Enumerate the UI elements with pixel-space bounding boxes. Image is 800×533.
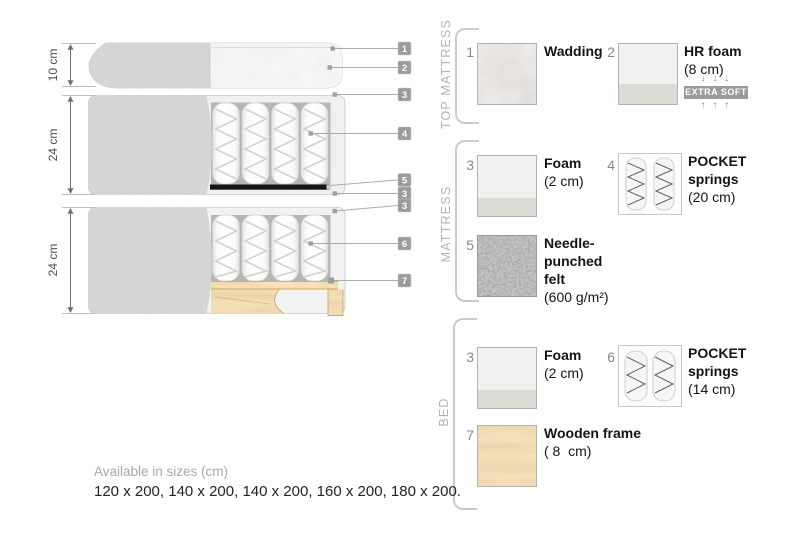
- legend-num-7: 7: [460, 427, 474, 443]
- callout-tag-2: 2: [398, 61, 411, 74]
- fabric-cover-bed: [84, 204, 218, 318]
- wadding-swatch: [477, 43, 537, 105]
- legend-label-pocket-springs-20: POCKET springs (20 cm): [688, 152, 746, 206]
- callout-tag-6: 6: [398, 237, 411, 250]
- section-title-bed: BED: [437, 397, 451, 426]
- callout-tags: 1 2 3 4 5 3 3 6 7: [398, 42, 411, 287]
- callout-tag-7: 7: [398, 274, 411, 287]
- fabric-cover-top: [84, 40, 215, 92]
- felt-strip: [210, 185, 329, 190]
- dimension-top-mattress: 10 cm: [46, 44, 96, 87]
- foam-swatch: [477, 155, 537, 217]
- legend-num-2: 2: [601, 44, 615, 60]
- legend-num-4: 4: [601, 157, 615, 173]
- callout-tag-5: 5: [398, 174, 411, 187]
- wooden-frame-swatch: [477, 425, 537, 487]
- wadding-fill: [200, 41, 346, 91]
- available-sizes-values: 120 x 200, 140 x 200, 140 x 200, 160 x 2…: [94, 483, 461, 500]
- callout-tag-3: 3: [398, 88, 411, 101]
- svg-text:5: 5: [402, 175, 408, 186]
- arrows-down-icon: ↓ ↓ ↓: [684, 74, 748, 84]
- foam-swatch-bed: [477, 347, 537, 409]
- arrows-up-icon: ↑ ↑ ↑: [684, 101, 748, 111]
- callout-tag-3c: 3: [398, 199, 411, 212]
- bed-cross-section: [84, 204, 350, 319]
- legend-num-6: 6: [601, 349, 615, 365]
- callout-tag-1: 1: [398, 42, 411, 55]
- section-title-top-mattress: TOP MATTRESS: [439, 19, 453, 129]
- pocket-springs-14-swatch: [618, 345, 682, 407]
- legend-label-felt: Needle- punched felt (600 g/m²): [544, 234, 609, 306]
- svg-text:1: 1: [402, 44, 408, 55]
- section-title-mattress: MATTRESS: [439, 186, 453, 263]
- legend-label-pocket-springs-14: POCKET springs (14 cm): [688, 344, 746, 398]
- legend-num-3b: 3: [460, 349, 474, 365]
- top-mattress-cross-section: [84, 40, 346, 92]
- legend-num-3: 3: [460, 157, 474, 173]
- legend-label-wadding: Wadding: [544, 42, 603, 60]
- extra-soft-badge: EXTRA SOFT: [684, 86, 748, 99]
- dim-label-mattress: 24 cm: [46, 129, 60, 162]
- svg-text:7: 7: [402, 276, 407, 287]
- hr-foam-swatch: [618, 43, 678, 105]
- mattress-infographic: { "diagram": { "dims": { "top_mattress":…: [0, 0, 800, 533]
- dim-label-bed: 24 cm: [46, 244, 60, 277]
- bed-bracket: [453, 318, 477, 510]
- pocket-springs-20-swatch: [618, 153, 682, 215]
- bed-cross-section-diagram: 10 cm 24 cm 24 cm: [0, 0, 440, 533]
- dim-label-top-mattress: 10 cm: [46, 49, 60, 82]
- top-mattress-bracket: [455, 28, 479, 124]
- legend-label-wooden-frame: Wooden frame ( 8 cm): [544, 424, 641, 460]
- available-sizes-label: Available in sizes (cm): [94, 464, 228, 479]
- svg-text:3: 3: [402, 189, 407, 200]
- felt-swatch: [477, 235, 537, 297]
- svg-text:2: 2: [402, 63, 407, 74]
- legend-num-5: 5: [460, 237, 474, 253]
- legend-label-foam-bed: Foam (2 cm): [544, 346, 584, 382]
- svg-text:3: 3: [402, 201, 407, 212]
- mattress-cross-section: [84, 92, 345, 198]
- svg-text:6: 6: [402, 239, 407, 250]
- callout-tag-4: 4: [398, 127, 411, 140]
- svg-text:3: 3: [402, 90, 407, 101]
- fabric-cover-mattress: [84, 92, 218, 198]
- legend-label-foam-mattress: Foam (2 cm): [544, 154, 584, 190]
- svg-text:4: 4: [402, 129, 408, 140]
- callout-tag-3b: 3: [398, 187, 411, 200]
- legend-num-1: 1: [460, 44, 474, 60]
